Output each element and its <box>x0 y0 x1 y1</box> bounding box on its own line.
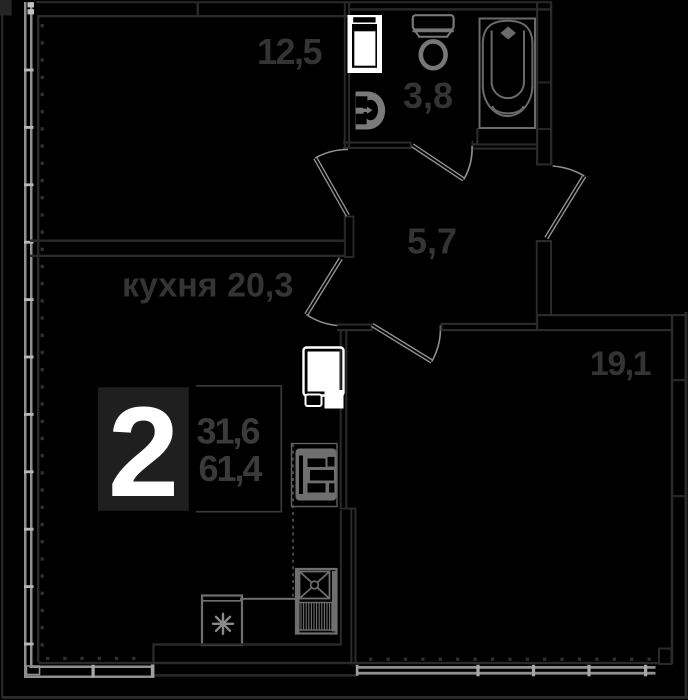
svg-text:5,7: 5,7 <box>407 221 457 262</box>
svg-text:3,8: 3,8 <box>403 75 453 116</box>
svg-text:2: 2 <box>108 381 179 524</box>
svg-text:31,6: 31,6 <box>197 411 260 452</box>
svg-text:61,4: 61,4 <box>199 448 263 489</box>
svg-text:19,1: 19,1 <box>590 345 651 383</box>
svg-text:12,5: 12,5 <box>257 31 323 72</box>
svg-text:кухня 20,3: кухня 20,3 <box>122 267 293 305</box>
